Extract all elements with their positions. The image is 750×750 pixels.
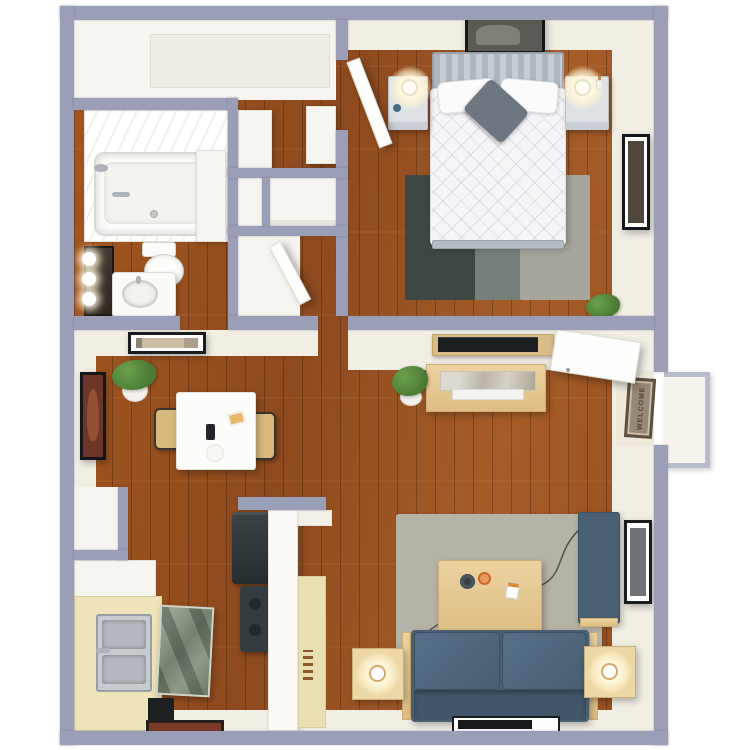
dining-chair-left (154, 408, 178, 450)
sink-basin-bottom (102, 655, 146, 684)
exterior-stoop (664, 372, 710, 468)
blue-ornament (393, 104, 401, 112)
bathroom-top-wall (74, 98, 238, 110)
utility-closet-wall-horizontal (74, 550, 128, 560)
bathroom-right-wall (228, 98, 238, 322)
dining-wall-art-maroon (80, 372, 106, 460)
table-lamp (574, 79, 591, 96)
bench-wood-end (580, 618, 618, 627)
welcome-mat: WELCOME (624, 377, 656, 439)
dishwasher-open (156, 605, 215, 698)
marble-tray (440, 371, 536, 391)
kitchen-partition-cap (238, 497, 326, 510)
bathroom-bottom-wall (74, 316, 180, 330)
tub-drain (150, 210, 158, 218)
dining-wall-art-horizontal (128, 332, 206, 354)
partition-ledge (298, 510, 332, 526)
mat-content (458, 720, 532, 729)
table-lamp (369, 665, 386, 682)
burner (249, 624, 261, 636)
vanity-light (82, 292, 96, 306)
closet-divider-wall-2 (228, 226, 348, 236)
orange-mug (478, 572, 491, 585)
hall-closet-shelf (306, 106, 336, 164)
vanity-light (82, 272, 96, 286)
bedroom-bottom-wall (348, 316, 654, 330)
console-plate (452, 389, 524, 400)
art-content (87, 389, 99, 441)
coaster-with-cup (460, 574, 475, 589)
door-knob (566, 368, 570, 372)
bedroom-left-wall-upper (336, 20, 348, 60)
exterior-wall-left (60, 6, 74, 745)
burner (249, 598, 261, 610)
kitchen-upper-cabinet (74, 560, 156, 598)
art-above-bed (465, 16, 545, 54)
exterior-wall-top (60, 6, 668, 20)
sofa-cushion (502, 632, 586, 690)
cubby-divider-wall (262, 178, 270, 226)
table-lamp (401, 79, 418, 96)
art-content (136, 338, 198, 348)
welcome-mat-text: WELCOME (627, 380, 653, 435)
art-content (628, 141, 644, 223)
vanity-light (82, 252, 96, 266)
vase-with-sticks (596, 80, 603, 90)
bedroom-left-wall-lower (336, 130, 348, 316)
art-content (476, 25, 520, 45)
tub-partition (196, 150, 226, 242)
bedroom-wall-art (622, 134, 650, 230)
card-on-table (505, 581, 520, 600)
closet-column-bottom-wall (228, 316, 318, 330)
exterior-wall-right-lower (654, 445, 668, 745)
tv-screen (438, 337, 538, 352)
refrigerator (232, 512, 272, 584)
coffee-table (438, 560, 542, 638)
living-wall-art (624, 520, 652, 604)
entry-closet-recess (150, 34, 330, 88)
kitchen-partition-wall (268, 510, 298, 731)
sink-basin-top (102, 620, 146, 649)
floor-plan-image[interactable]: WELCOME (0, 0, 750, 750)
exterior-wall-bottom (60, 731, 668, 745)
kitchen-faucet (96, 648, 110, 653)
wine-rack (303, 650, 313, 680)
tub-faucet (112, 192, 130, 197)
hall-closet-shelf (238, 110, 272, 170)
bed-footboard (432, 240, 564, 249)
shower-head (94, 164, 108, 172)
phone-on-table (206, 424, 215, 440)
bowl-on-table (206, 444, 224, 462)
sink-faucet (136, 276, 141, 284)
art-content (630, 528, 646, 596)
closet-divider-wall-1 (228, 168, 348, 178)
sofa-cushion (414, 632, 500, 690)
linen-cubby-right (270, 178, 336, 226)
exterior-wall-right-upper (654, 6, 668, 372)
bathroom-sink-basin (122, 280, 158, 308)
accent-bench (578, 512, 620, 624)
kitchen-utility-closet (74, 487, 118, 550)
table-lamp (601, 663, 618, 680)
